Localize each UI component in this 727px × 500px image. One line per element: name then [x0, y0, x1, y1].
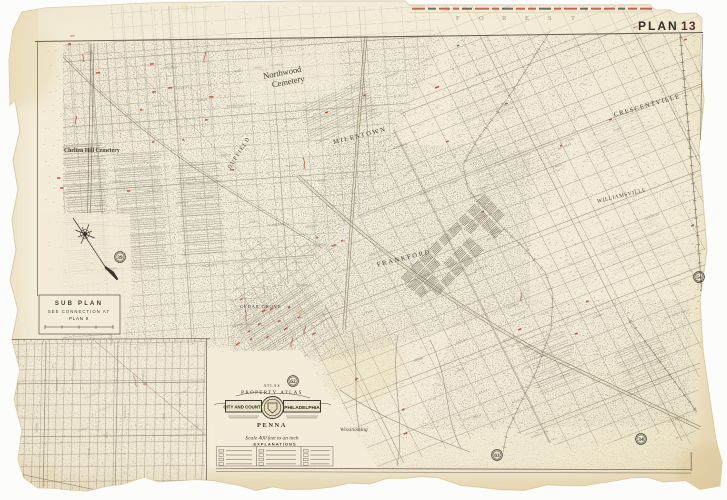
svg-text:T: T — [571, 15, 575, 22]
svg-text:TEFS: TEFS — [254, 66, 262, 70]
svg-text:34: 34 — [638, 437, 644, 443]
svg-text:PROPERTY ATLAS: PROPERTY ATLAS — [241, 391, 303, 396]
svg-text:PLAN: PLAN — [638, 19, 679, 33]
svg-text:HARI: HARI — [249, 221, 257, 225]
svg-text:39: 39 — [117, 255, 123, 261]
svg-text:EXPLANATIONS: EXPLANATIONS — [253, 441, 296, 446]
svg-text:E: E — [525, 15, 529, 22]
svg-text:HLLEF: HLLEF — [179, 397, 182, 406]
svg-text:Wissinoming: Wissinoming — [340, 427, 368, 433]
svg-text:R: R — [502, 15, 507, 22]
svg-text:SARI: SARI — [162, 413, 165, 420]
svg-text:NERU: NERU — [234, 70, 243, 74]
svg-text:BSAEU: BSAEU — [18, 423, 21, 432]
svg-text:SMABDSH: SMABDSH — [73, 357, 76, 371]
svg-text:ATLAS: ATLAS — [264, 383, 281, 388]
svg-text:SEE CONNECTION AT: SEE CONNECTION AT — [48, 309, 110, 314]
svg-text:BEBBM: BEBBM — [35, 422, 38, 432]
svg-text:SOCB: SOCB — [327, 244, 336, 248]
svg-text:54: 54 — [696, 275, 702, 281]
svg-text:CEDAR GROVE: CEDAR GROVE — [240, 304, 281, 309]
svg-text:ECWNGPU: ECWNGPU — [56, 377, 59, 391]
svg-text:MIPDSD: MIPDSD — [142, 370, 145, 381]
svg-text:PLAN 9: PLAN 9 — [69, 316, 89, 321]
svg-text:O: O — [479, 15, 484, 22]
svg-text:EODN: EODN — [84, 51, 93, 55]
svg-text:Chelten Hill Cemetery: Chelten Hill Cemetery — [64, 148, 120, 154]
svg-text:RFFC: RFFC — [106, 431, 109, 438]
svg-text:63: 63 — [494, 453, 500, 459]
svg-text:SUB PLAN: SUB PLAN — [55, 301, 103, 307]
svg-text:PENNA: PENNA — [257, 422, 287, 429]
svg-text:13: 13 — [681, 19, 697, 33]
svg-text:CITY AND COUNTY: CITY AND COUNTY — [223, 405, 263, 410]
svg-text:F: F — [456, 15, 460, 22]
svg-text:ARGR: ARGR — [88, 448, 91, 456]
svg-text:WBTSCOS: WBTSCOS — [124, 405, 127, 419]
svg-text:PHILADELPHIA: PHILADELPHIA — [284, 405, 320, 411]
svg-text:62: 62 — [290, 379, 296, 385]
svg-text:S: S — [548, 15, 552, 22]
